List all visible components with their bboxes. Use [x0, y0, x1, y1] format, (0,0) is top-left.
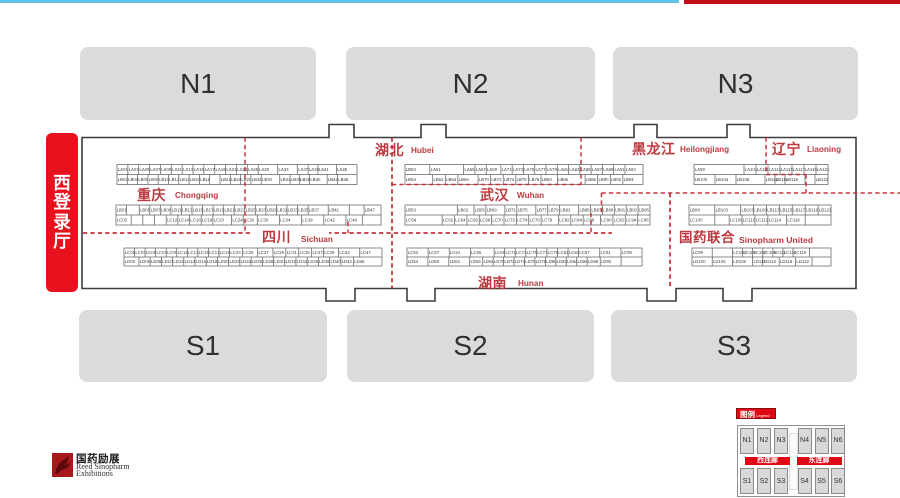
svg-text:LB92: LB92	[611, 177, 622, 182]
svg-text:LD16: LD16	[196, 259, 207, 264]
svg-text:LB15: LB15	[193, 208, 204, 213]
svg-text:LA121: LA121	[817, 167, 830, 172]
svg-text:LC19: LC19	[220, 250, 231, 255]
svg-text:LC96: LC96	[638, 218, 649, 223]
svg-text:LB08: LB08	[149, 177, 160, 182]
svg-text:LD88: LD88	[588, 259, 599, 264]
svg-text:LC34: LC34	[280, 218, 291, 223]
svg-text:LB26: LB26	[241, 177, 252, 182]
svg-text:LA99: LA99	[695, 167, 706, 172]
svg-text:LD78: LD78	[536, 259, 547, 264]
svg-text:LB78: LB78	[529, 177, 540, 182]
svg-text:LB70: LB70	[479, 177, 490, 182]
svg-text:LB21: LB21	[224, 208, 235, 213]
svg-text:LC02: LC02	[117, 218, 128, 223]
svg-text:LC12: LC12	[167, 218, 178, 223]
svg-text:LD114: LD114	[764, 259, 777, 264]
svg-text:LB118: LB118	[786, 177, 799, 182]
svg-text:LC25: LC25	[243, 250, 254, 255]
svg-text:LA71: LA71	[502, 167, 513, 172]
svg-text:LD100: LD100	[693, 259, 706, 264]
svg-text:LC30: LC30	[258, 218, 269, 223]
svg-text:LC07: LC07	[156, 250, 167, 255]
svg-text:LD06: LD06	[140, 259, 151, 264]
svg-text:LB18: LB18	[200, 177, 211, 182]
svg-text:LA37: LA37	[298, 167, 309, 172]
svg-text:LB41: LB41	[329, 208, 340, 213]
svg-text:LB13: LB13	[182, 208, 193, 213]
svg-text:LD68: LD68	[484, 259, 495, 264]
svg-text:LC35: LC35	[300, 250, 311, 255]
svg-text:LD24: LD24	[241, 259, 252, 264]
svg-text:LD92: LD92	[601, 259, 612, 264]
svg-text:LC92: LC92	[614, 218, 625, 223]
svg-text:LC39: LC39	[324, 250, 335, 255]
svg-text:LA05: LA05	[140, 167, 151, 172]
svg-text:LC81: LC81	[558, 250, 569, 255]
svg-text:LC17: LC17	[209, 250, 220, 255]
svg-text:LB74: LB74	[504, 177, 515, 182]
svg-text:LD32: LD32	[286, 259, 297, 264]
svg-text:LB69: LB69	[487, 208, 498, 213]
svg-text:LA91: LA91	[614, 167, 625, 172]
svg-text:LD20: LD20	[218, 259, 229, 264]
svg-text:LC77: LC77	[537, 250, 548, 255]
svg-text:LC16: LC16	[190, 218, 201, 223]
svg-text:LD66: LD66	[470, 259, 481, 264]
svg-text:LC79: LC79	[548, 250, 559, 255]
svg-text:LB90: LB90	[598, 177, 609, 182]
svg-text:LB87: LB87	[591, 208, 602, 213]
svg-text:LB54: LB54	[406, 177, 417, 182]
svg-text:LB53: LB53	[406, 208, 417, 213]
svg-text:LA93: LA93	[626, 167, 637, 172]
svg-text:LC01: LC01	[125, 250, 136, 255]
svg-text:LC95: LC95	[622, 250, 633, 255]
svg-text:LB88: LB88	[586, 177, 597, 182]
svg-text:LD76: LD76	[525, 259, 536, 264]
svg-text:LB80: LB80	[542, 177, 553, 182]
svg-text:LA87: LA87	[592, 167, 603, 172]
svg-text:LB47: LB47	[365, 208, 376, 213]
svg-text:LB119: LB119	[806, 208, 819, 213]
svg-text:LC114: LC114	[769, 218, 782, 223]
svg-text:LD10: LD10	[162, 259, 173, 264]
svg-text:LB94: LB94	[624, 177, 635, 182]
svg-text:LA81: LA81	[558, 167, 569, 172]
svg-text:LD122: LD122	[796, 259, 809, 264]
svg-text:LC70: LC70	[492, 218, 503, 223]
svg-text:LC74: LC74	[517, 218, 528, 223]
svg-text:LB38: LB38	[300, 177, 311, 182]
svg-text:LA17: LA17	[205, 167, 216, 172]
svg-text:LC78: LC78	[542, 218, 553, 223]
svg-text:LD118: LD118	[780, 259, 793, 264]
svg-text:LA21: LA21	[226, 167, 237, 172]
svg-text:LA29: LA29	[259, 167, 270, 172]
svg-text:LB05: LB05	[140, 208, 151, 213]
svg-text:LB28: LB28	[252, 177, 263, 182]
svg-text:LA73: LA73	[513, 167, 524, 172]
svg-text:LC66: LC66	[468, 218, 479, 223]
svg-text:LA77: LA77	[536, 167, 547, 172]
svg-text:LB10: LB10	[159, 177, 170, 182]
svg-text:LC38: LC38	[302, 218, 313, 223]
svg-text:LA113: LA113	[769, 167, 782, 172]
svg-text:LB23: LB23	[235, 208, 246, 213]
svg-text:LB103: LB103	[716, 208, 729, 213]
svg-text:LC75: LC75	[527, 250, 538, 255]
svg-text:LC27: LC27	[258, 250, 269, 255]
svg-text:LD38: LD38	[319, 259, 330, 264]
svg-text:LC03: LC03	[135, 250, 146, 255]
svg-text:LC119: LC119	[794, 250, 807, 255]
svg-text:LC57: LC57	[429, 250, 440, 255]
svg-text:LC31: LC31	[287, 250, 298, 255]
svg-text:LB91: LB91	[615, 208, 626, 213]
svg-text:LA19: LA19	[216, 167, 227, 172]
svg-text:LB71: LB71	[506, 208, 517, 213]
svg-text:LC46: LC46	[347, 218, 358, 223]
svg-text:LB86: LB86	[558, 177, 569, 182]
svg-text:LA69: LA69	[487, 167, 498, 172]
svg-text:LA115: LA115	[781, 167, 794, 172]
svg-text:LB83: LB83	[560, 208, 571, 213]
svg-text:LC54: LC54	[406, 218, 417, 223]
svg-text:LC11: LC11	[178, 250, 189, 255]
svg-text:LA41: LA41	[319, 167, 330, 172]
svg-text:LC87: LC87	[579, 250, 590, 255]
svg-text:LB104: LB104	[716, 177, 729, 182]
svg-text:LA25: LA25	[248, 167, 259, 172]
svg-text:LB16: LB16	[190, 177, 201, 182]
svg-text:LC05: LC05	[146, 250, 157, 255]
svg-text:LC88: LC88	[584, 218, 595, 223]
svg-text:LB99: LB99	[690, 208, 701, 213]
svg-text:LA15: LA15	[194, 167, 205, 172]
svg-text:LD12: LD12	[173, 259, 184, 264]
svg-text:LA67: LA67	[476, 167, 487, 172]
svg-text:LC18: LC18	[202, 218, 213, 223]
svg-text:LB35: LB35	[298, 208, 309, 213]
svg-text:LC23: LC23	[230, 250, 241, 255]
svg-text:LB29: LB29	[267, 208, 278, 213]
svg-text:LC99: LC99	[693, 250, 704, 255]
svg-text:LC73: LC73	[516, 250, 527, 255]
svg-text:LB76: LB76	[517, 177, 528, 182]
svg-text:LC29: LC29	[274, 250, 285, 255]
svg-text:LB06: LB06	[138, 177, 149, 182]
svg-text:LB95: LB95	[639, 208, 650, 213]
svg-text:LB25: LB25	[246, 208, 257, 213]
svg-text:LA01: LA01	[118, 167, 129, 172]
svg-text:LD106: LD106	[713, 259, 726, 264]
svg-text:LB34: LB34	[281, 177, 292, 182]
svg-text:LB108: LB108	[737, 177, 750, 182]
svg-text:LA33: LA33	[279, 167, 290, 172]
svg-text:LB121: LB121	[819, 208, 832, 213]
svg-text:LD02: LD02	[125, 259, 136, 264]
svg-text:LB07: LB07	[151, 208, 162, 213]
svg-text:LB19: LB19	[214, 208, 225, 213]
svg-text:LB14: LB14	[180, 177, 191, 182]
svg-text:LC82: LC82	[559, 218, 570, 223]
svg-text:LA75: LA75	[524, 167, 535, 172]
svg-text:LA117: LA117	[793, 167, 806, 172]
svg-text:LB63: LB63	[458, 208, 469, 213]
svg-text:LB22: LB22	[221, 177, 232, 182]
svg-text:LC43: LC43	[339, 250, 350, 255]
svg-text:LA119: LA119	[805, 167, 818, 172]
svg-text:LD14: LD14	[185, 259, 196, 264]
svg-text:LB122: LB122	[816, 177, 829, 182]
svg-text:LA11: LA11	[172, 167, 182, 172]
svg-text:LB77: LB77	[537, 208, 548, 213]
svg-text:LB66: LB66	[459, 177, 470, 182]
svg-text:LC62: LC62	[443, 218, 454, 223]
svg-text:LC110: LC110	[743, 218, 756, 223]
svg-text:LD80: LD80	[546, 259, 557, 264]
svg-text:LD18: LD18	[207, 259, 218, 264]
svg-text:LB37: LB37	[309, 208, 320, 213]
svg-text:LB48: LB48	[338, 177, 349, 182]
svg-text:LC90: LC90	[601, 218, 612, 223]
svg-text:LB64: LB64	[446, 177, 457, 182]
svg-text:LA07: LA07	[150, 167, 161, 172]
svg-text:LD70: LD70	[494, 259, 505, 264]
svg-text:LD82: LD82	[557, 259, 568, 264]
svg-text:LC47: LC47	[361, 250, 372, 255]
svg-text:LB12: LB12	[169, 177, 180, 182]
svg-text:LD36: LD36	[308, 259, 319, 264]
svg-text:LB27: LB27	[256, 208, 267, 213]
svg-text:LA03: LA03	[129, 167, 140, 172]
svg-text:LB17: LB17	[203, 208, 214, 213]
svg-text:LB62: LB62	[434, 177, 445, 182]
svg-text:LC94: LC94	[626, 218, 637, 223]
svg-text:LD40: LD40	[330, 259, 341, 264]
svg-text:LA23: LA23	[237, 167, 248, 172]
svg-text:LC83: LC83	[569, 250, 580, 255]
svg-text:LB115: LB115	[780, 208, 793, 213]
svg-text:LB09: LB09	[161, 208, 172, 213]
svg-text:LC100: LC100	[690, 218, 703, 223]
svg-text:LC69: LC69	[495, 250, 506, 255]
svg-text:LB85: LB85	[579, 208, 590, 213]
svg-text:LB11: LB11	[172, 208, 182, 213]
svg-text:LC84: LC84	[572, 218, 583, 223]
svg-text:LD74: LD74	[515, 259, 526, 264]
svg-text:LC20: LC20	[214, 218, 225, 223]
svg-text:LA45: LA45	[337, 167, 348, 172]
svg-text:LC15: LC15	[199, 250, 210, 255]
svg-text:LD30: LD30	[274, 259, 285, 264]
svg-text:LC53: LC53	[408, 250, 419, 255]
svg-text:LC106: LC106	[730, 218, 743, 223]
svg-text:LD26: LD26	[252, 259, 263, 264]
svg-text:LA85: LA85	[581, 167, 592, 172]
svg-text:LC118: LC118	[787, 218, 800, 223]
svg-text:LD84: LD84	[567, 259, 578, 264]
svg-text:LC09: LC09	[167, 250, 178, 255]
svg-text:LB02: LB02	[118, 177, 129, 182]
svg-text:LA79: LA79	[547, 167, 558, 172]
svg-text:LB117: LB117	[793, 208, 806, 213]
svg-text:LB01: LB01	[117, 208, 128, 213]
svg-text:LB44: LB44	[328, 177, 339, 182]
svg-text:LB100: LB100	[695, 177, 708, 182]
svg-text:LD08: LD08	[151, 259, 162, 264]
svg-text:LC37: LC37	[312, 250, 323, 255]
svg-text:LB79: LB79	[549, 208, 560, 213]
svg-text:LC13: LC13	[188, 250, 199, 255]
svg-text:LC68: LC68	[480, 218, 491, 223]
svg-text:LC112: LC112	[756, 218, 769, 223]
svg-text:LA89: LA89	[603, 167, 614, 172]
svg-text:LD72: LD72	[504, 259, 515, 264]
svg-text:LA111: LA111	[757, 167, 769, 172]
svg-text:LC91: LC91	[601, 250, 612, 255]
svg-text:LD108: LD108	[733, 259, 746, 264]
svg-text:LC64: LC64	[455, 218, 466, 223]
svg-text:LC24: LC24	[232, 218, 243, 223]
svg-text:LD42: LD42	[342, 259, 353, 264]
svg-text:LC14: LC14	[179, 218, 190, 223]
svg-text:LD34: LD34	[297, 259, 308, 264]
svg-text:LB30: LB30	[262, 177, 273, 182]
svg-text:LA61: LA61	[431, 167, 442, 172]
svg-text:LD58: LD58	[429, 259, 440, 264]
svg-text:LB93: LB93	[627, 208, 638, 213]
svg-text:LB107: LB107	[741, 208, 754, 213]
svg-text:LC65: LC65	[471, 250, 482, 255]
svg-text:LD46: LD46	[354, 259, 365, 264]
svg-text:LB53: LB53	[406, 167, 417, 172]
svg-text:LC76: LC76	[530, 218, 541, 223]
svg-text:LB24: LB24	[231, 177, 242, 182]
svg-text:LC72: LC72	[505, 218, 516, 223]
svg-text:LB31: LB31	[277, 208, 288, 213]
svg-text:LA13: LA13	[183, 167, 194, 172]
svg-text:LA09: LA09	[161, 167, 172, 172]
svg-text:LA65: LA65	[464, 167, 475, 172]
svg-text:LB72: LB72	[491, 177, 502, 182]
svg-text:LB65: LB65	[475, 208, 486, 213]
svg-text:LB89: LB89	[603, 208, 614, 213]
svg-text:LB40: LB40	[310, 177, 321, 182]
svg-text:LD54: LD54	[408, 259, 419, 264]
svg-text:LC42: LC42	[325, 218, 336, 223]
svg-text:LD28: LD28	[263, 259, 274, 264]
svg-text:LC61: LC61	[450, 250, 461, 255]
svg-text:LD62: LD62	[450, 259, 461, 264]
svg-text:LB113: LB113	[767, 208, 780, 213]
svg-text:LB33: LB33	[288, 208, 299, 213]
svg-text:LB109: LB109	[754, 208, 767, 213]
svg-text:LB04: LB04	[128, 177, 139, 182]
svg-text:LA83: LA83	[569, 167, 580, 172]
svg-text:LB75: LB75	[518, 208, 529, 213]
svg-text:LC71: LC71	[506, 250, 517, 255]
svg-text:LD86: LD86	[578, 259, 589, 264]
svg-text:LD22: LD22	[230, 259, 241, 264]
